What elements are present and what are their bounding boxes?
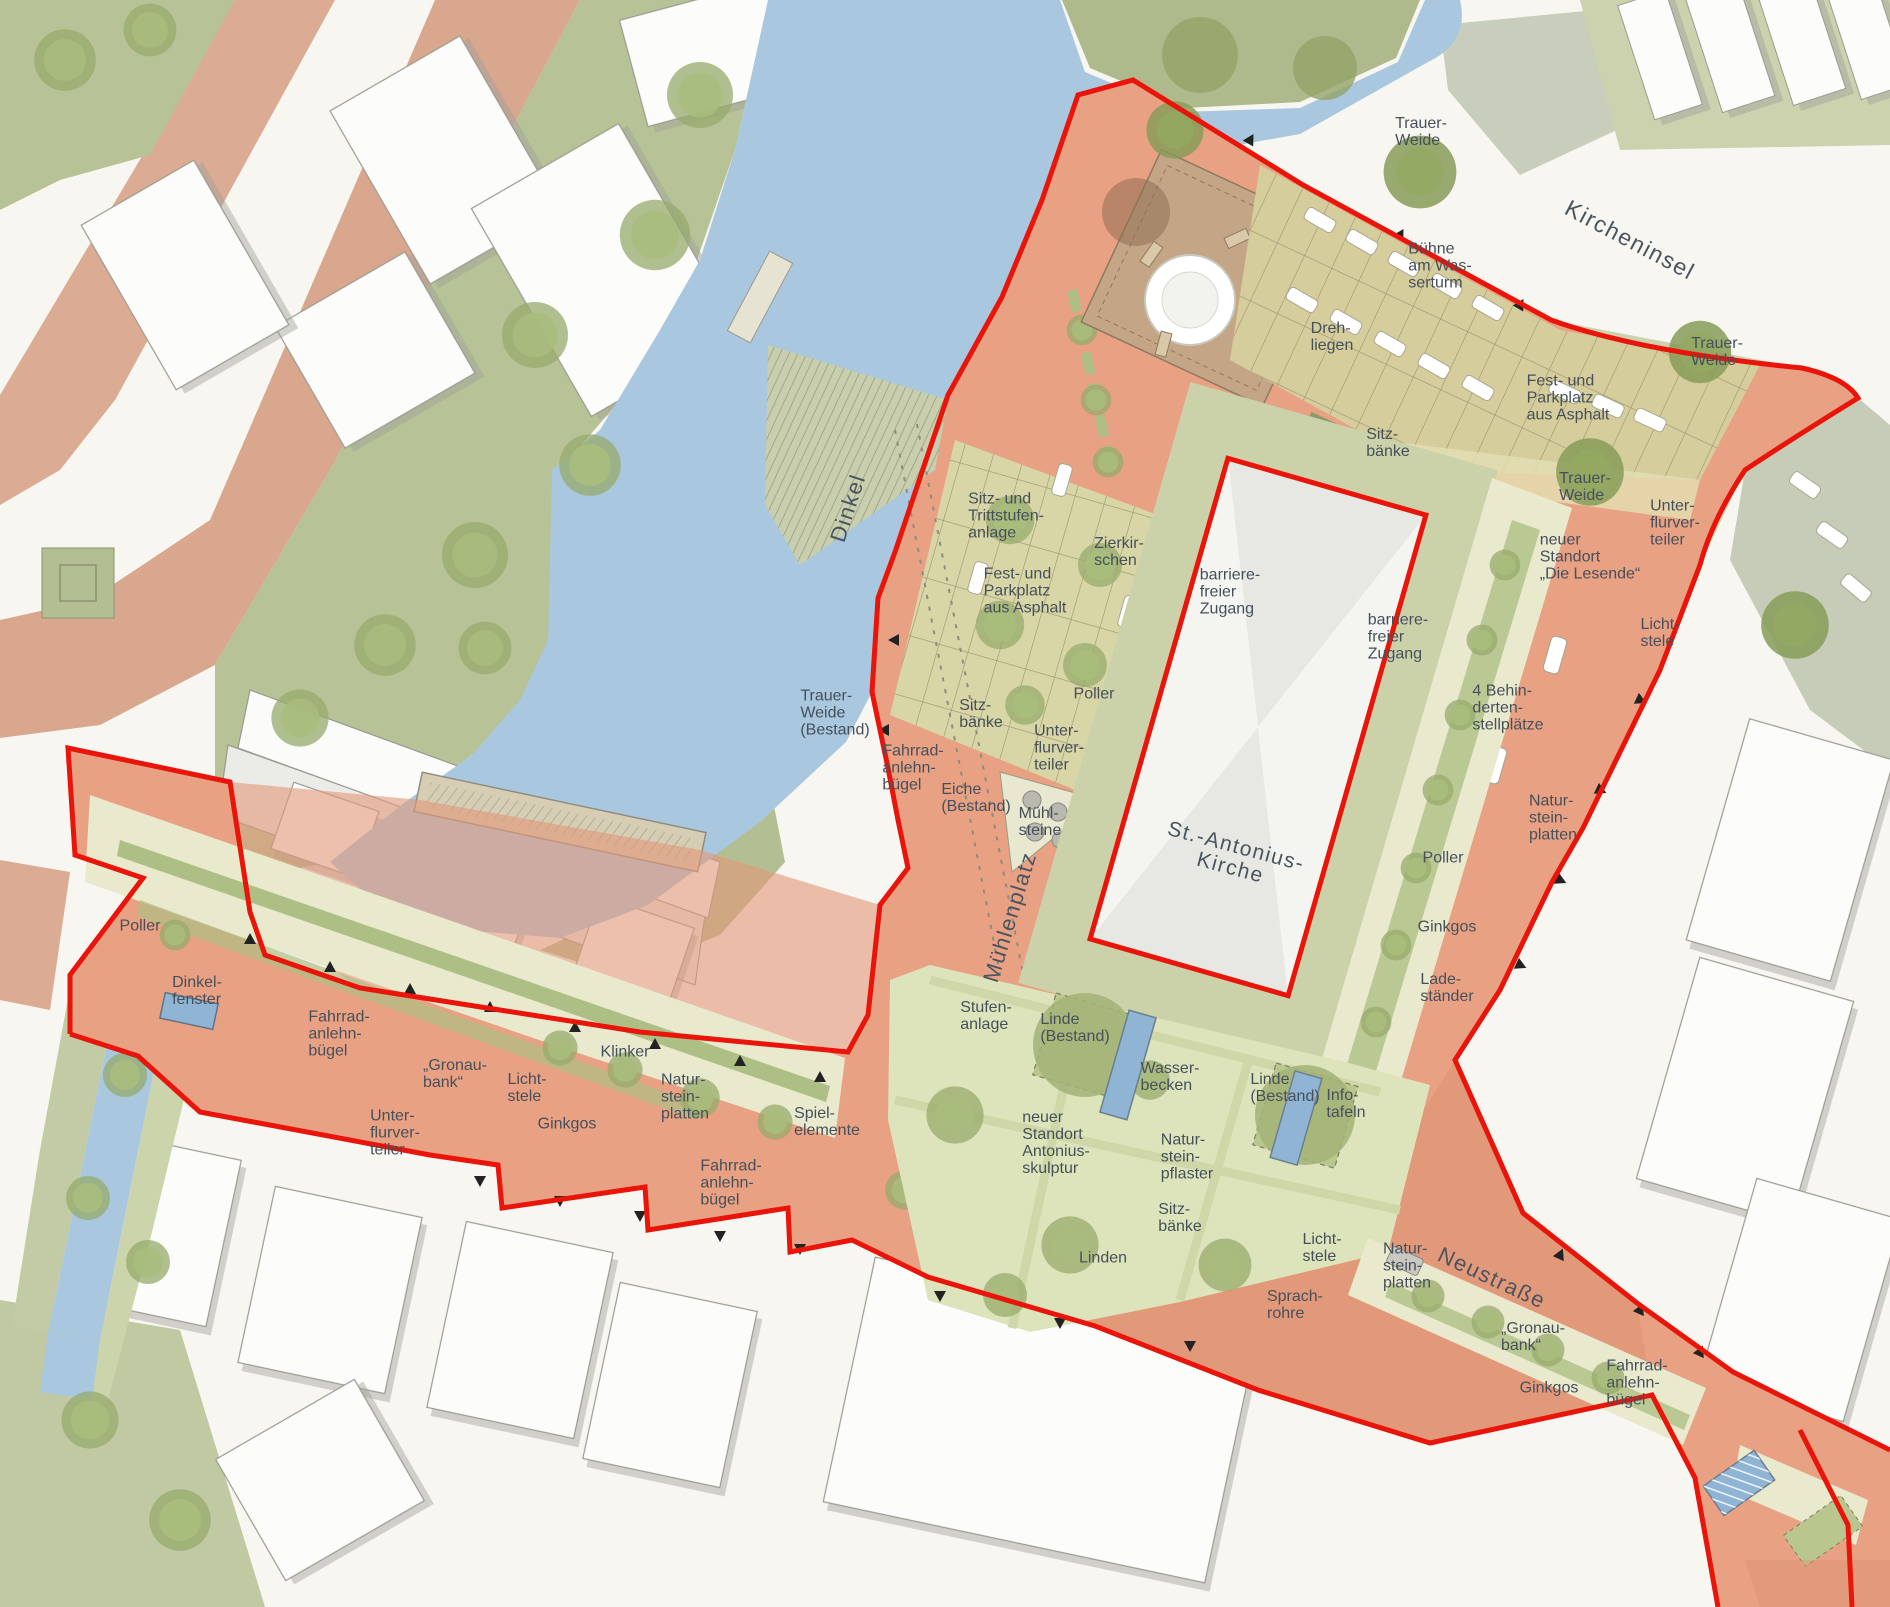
label-fahrradanlehnbuegel-pond: Fahrrad- anlehn- bügel	[882, 742, 943, 793]
label-neuer-standort-antoniusskulptur: neuer Standort Antonius- skulptur	[1022, 1109, 1090, 1177]
label-unterflurverteiler-west: Unter- flurver- teiler	[370, 1107, 420, 1158]
label-zierkirschen: Zierkir- schen	[1094, 535, 1144, 569]
label-sitzbaenke-platz: Sitz- bänke	[1158, 1201, 1202, 1235]
label-barrierefreier-zugang-west: barriere- freier Zugang	[1200, 566, 1260, 617]
label-linden: Linden	[1079, 1249, 1127, 1266]
label-gronaubank-west: „Gronau- bank“	[423, 1057, 487, 1091]
label-neuer-standort-die-lesende: neuer Standort „Die Lesende“	[1540, 531, 1641, 582]
label-sitz-trittstufenanlage: Sitz- und Trittstufen- anlage	[968, 490, 1044, 541]
label-lichtstele-sued: Licht- stele	[1302, 1231, 1341, 1265]
label-sitzbaenke-muehlenplatz: Sitz- bänke	[959, 697, 1003, 731]
label-trauer-weide-bestand: Trauer- Weide (Bestand)	[800, 687, 869, 738]
label-trauer-weide-nw: Trauer- Weide	[1395, 115, 1447, 149]
label-ginkgos-ost: Ginkgos	[1418, 918, 1477, 935]
label-kircheninsel: Kircheninsel	[1561, 195, 1699, 284]
label-natursteinplatten-ost: Natur- stein- platten	[1529, 792, 1577, 843]
label-st-antonius-kirche: St.-Antonius- Kirche	[1159, 818, 1307, 898]
label-fest-parkplatz-kircheninsel: Fest- und Parkplatz aus Asphalt	[1527, 372, 1610, 423]
label-linde-bestand-2: Linde (Bestand)	[1250, 1071, 1319, 1105]
label-unterflurverteiler-ne: Unter- flurver- teiler	[1650, 497, 1700, 548]
label-linde-bestand-1: Linde (Bestand)	[1040, 1011, 1109, 1045]
label-dinkelfenster: Dinkel- fenster	[172, 974, 222, 1008]
label-behindertenstellplaetze: 4 Behin- derten- stellplätze	[1472, 682, 1543, 733]
label-eiche-bestand: Eiche (Bestand)	[941, 781, 1010, 815]
label-sprachrohre: Sprach- rohre	[1267, 1288, 1323, 1322]
label-poller-muehlenplatz: Poller	[1074, 685, 1115, 702]
label-infotafeln: Info- tafeln	[1326, 1087, 1365, 1121]
label-lichtstele-ne: Licht- stele	[1640, 616, 1679, 650]
label-ladestaender: Lade- ständer	[1420, 971, 1473, 1005]
label-fahrradanlehnbuegel-suedwest: Fahrrad- anlehn- bügel	[700, 1157, 761, 1208]
label-neustrasse: Neustraße	[1434, 1243, 1549, 1313]
label-lichtstele-west: Licht- stele	[507, 1071, 546, 1105]
label-barrierefreier-zugang-ost: barriere- freier Zugang	[1368, 611, 1428, 662]
site-plan: Trauer- WeideKircheninselBühne am Was- s…	[0, 0, 1890, 1607]
label-natursteinplatten-west: Natur- stein- platten	[661, 1071, 709, 1122]
label-buehne-am-wasserturm: Bühne am Was- serturm	[1408, 240, 1471, 291]
label-fahrradanlehnbuegel-west: Fahrrad- anlehn- bügel	[308, 1008, 369, 1059]
label-natursteinpflaster: Natur- stein- pflaster	[1161, 1131, 1213, 1182]
label-poller-ost: Poller	[1423, 849, 1464, 866]
label-unterflurverteiler-muehlenplatz: Unter- flurver- teiler	[1034, 722, 1084, 773]
label-sitzbaenke-kirche-nord: Sitz- bänke	[1366, 426, 1410, 460]
label-ginkgos-sued: Ginkgos	[1520, 1379, 1579, 1396]
label-fahrradanlehnbuegel-suedost: Fahrrad- anlehn- bügel	[1606, 1357, 1667, 1408]
label-natursteinplatten-sued: Natur- stein- platten	[1383, 1240, 1431, 1291]
label-trauer-weide-ne: Trauer- Weide	[1691, 335, 1743, 369]
label-trauer-weide-ost: Trauer- Weide	[1559, 470, 1611, 504]
label-stufenanlage: Stufen- anlage	[960, 999, 1012, 1033]
label-spielelemente: Spiel- elemente	[794, 1105, 860, 1139]
label-fest-parkplatz-muehlenplatz: Fest- und Parkplatz aus Asphalt	[984, 565, 1067, 616]
label-klinker: Klinker	[601, 1043, 650, 1060]
label-muehlenplatz: Mühlenplatz	[979, 849, 1041, 985]
label-dinkel: Dinkel	[826, 471, 870, 545]
label-poller-west: Poller	[120, 917, 161, 934]
label-muehlsteine: Mühl- steine	[1019, 805, 1062, 839]
label-drehliegen: Dreh- liegen	[1311, 320, 1354, 354]
label-ginkgos-west: Ginkgos	[538, 1115, 597, 1132]
labels-layer: Trauer- WeideKircheninselBühne am Was- s…	[0, 0, 1890, 1607]
label-wasserbecken: Wasser- becken	[1141, 1060, 1200, 1094]
label-gronaubank-sued: „Gronau- bank“	[1501, 1320, 1565, 1354]
